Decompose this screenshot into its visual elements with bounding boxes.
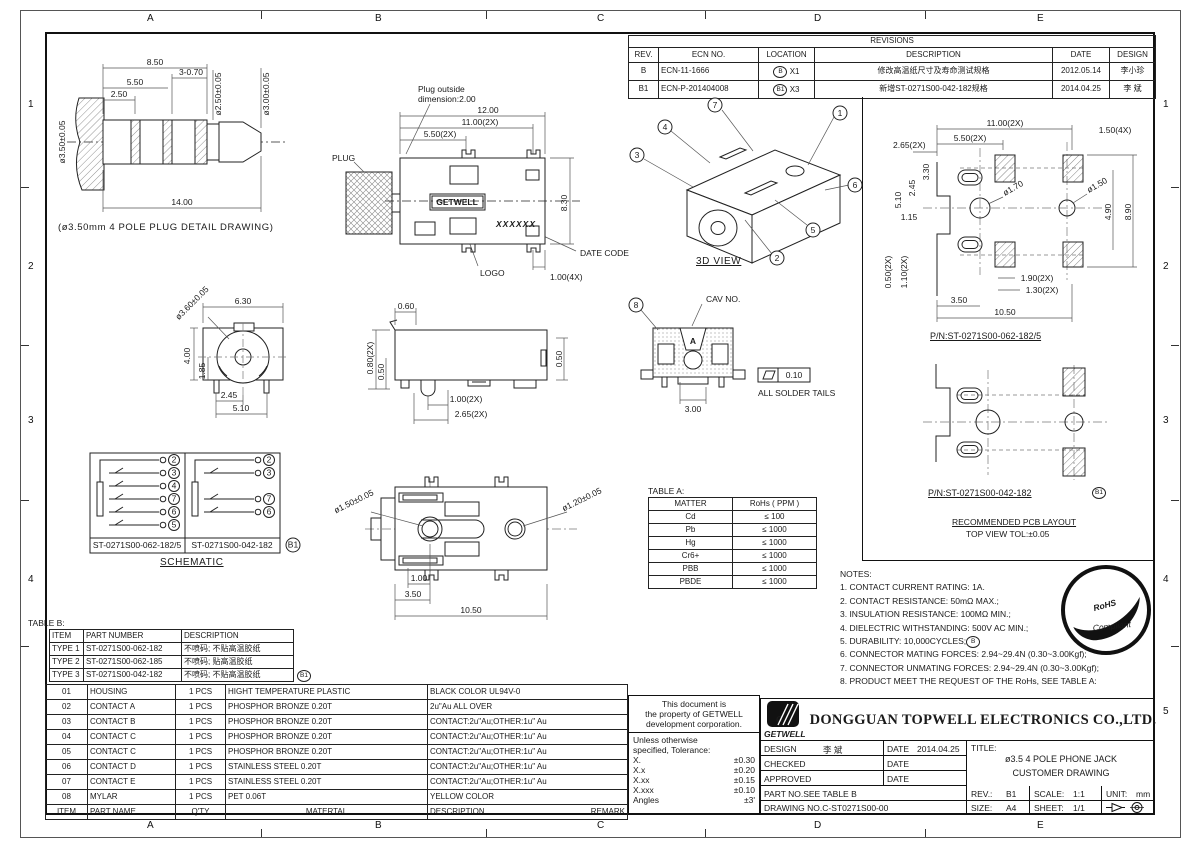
- pin-number: 2: [172, 455, 177, 465]
- dim-label: 12.00: [477, 105, 499, 115]
- zone-letter: E: [1037, 13, 1044, 24]
- solder-tails-note: ALL SOLDER TAILS: [758, 388, 836, 398]
- zone-letter: C: [597, 820, 604, 831]
- dim-label: 1.90(2X): [1021, 273, 1054, 283]
- dim-label: ø1.50±0.05: [332, 487, 375, 515]
- tolerance-row: X.x±0.20: [633, 765, 755, 775]
- pin-number: 3: [267, 468, 272, 478]
- projection-symbol-icon: [1103, 801, 1151, 814]
- zone-letter: E: [1037, 820, 1044, 831]
- drawing-title-line1: ø3.5 4 POLE PHONE JACK: [967, 754, 1155, 764]
- dim-label: ø3.60±0.05: [173, 284, 211, 322]
- dim-label: 3.50: [405, 589, 422, 599]
- zone-letter: B: [375, 13, 382, 24]
- zone-tick: [1171, 646, 1179, 647]
- side-view-drawing: 0.60 0.80(2X) 0.50 0.50 1.00(2X) 2.65(2X…: [328, 298, 594, 433]
- dim-label: 3.00: [685, 404, 702, 414]
- table-a-row: Pb≤ 1000: [649, 524, 817, 537]
- dim-label: 10.50: [994, 307, 1016, 317]
- pcb-layout-1-drawing: 11.00(2X) 5.50(2X) 1.50(4X) 2.65(2X) 3.3…: [865, 100, 1155, 328]
- zone-tick: [1171, 500, 1179, 501]
- dim-label: 1.85: [197, 362, 207, 379]
- pin-number: 6: [267, 507, 272, 517]
- part-row: 05CONTACT C1 PCSPHOSPHOR BRONZE 0.20TCON…: [46, 745, 628, 760]
- zone-tick: [1171, 345, 1179, 346]
- pcb-layout-tolerance: TOP VIEW TOL:±0.05: [966, 529, 1049, 539]
- pcb-layout-2-drawing: [895, 350, 1150, 485]
- cavity-letter: A: [690, 336, 696, 346]
- dim-label: 1.50(4X): [1099, 125, 1132, 135]
- unit-label: UNIT:: [1106, 789, 1127, 799]
- dim-label: 1.30(2X): [1026, 285, 1059, 295]
- type-row: TYPE 1ST-0271S00-062-182不喷码; 不贴高温胶纸: [50, 643, 294, 656]
- zone-letter: C: [597, 13, 604, 24]
- rev-value: B1: [1006, 789, 1016, 799]
- dim-label: 8.90: [1123, 203, 1133, 220]
- engineering-drawing-sheet: A B C D E A B C D E 1 2 3 4 1 2 3 4 5 RE…: [0, 0, 1200, 848]
- table-b-label: TABLE B:: [28, 618, 65, 628]
- location-col-header: LOCATION: [759, 48, 815, 63]
- dim-label: ø1.50: [1085, 175, 1109, 195]
- getwell-logo: G GETWELL: [764, 700, 814, 740]
- schematic-rev-balloon: B1: [288, 540, 299, 550]
- zone-tick: [261, 11, 262, 19]
- zone-tick: [21, 646, 29, 647]
- plug-detail-drawing: 8.50 3-0.70 5.50 2.50 14.00 ø3.50±0.05 ø…: [55, 50, 345, 222]
- dim-label: 1.00(2X): [450, 394, 483, 404]
- dim-label: 4.90: [1103, 203, 1113, 220]
- drawing-no: DRAWING NO.C-ST0271S00-00: [764, 803, 888, 813]
- dim-label: 3-0.70: [179, 67, 203, 77]
- balloon-6: 6: [853, 180, 858, 190]
- dim-label: 1.10(2X): [899, 256, 909, 289]
- dim-label: 1.15: [901, 212, 918, 222]
- dim-label: 0.60: [398, 301, 415, 311]
- flatness-value: 0.10: [786, 370, 803, 380]
- dim-label: 8.30: [559, 194, 569, 211]
- dim-label: ø3.50±0.05: [57, 120, 67, 163]
- dim-label: 2.45: [907, 179, 917, 196]
- item-header: ITEM: [50, 630, 84, 643]
- balloon-7: 7: [713, 100, 718, 110]
- pin-number: 5: [172, 520, 177, 530]
- balloon-4: 4: [663, 122, 668, 132]
- rev-label: REV.:: [971, 789, 992, 799]
- dim-label: 0.50: [554, 350, 564, 367]
- dim-label: 0.50: [376, 363, 386, 380]
- rohs-stamp-subtext: Compliant: [1092, 619, 1132, 633]
- rear-view-drawing: 8 CAV NO. A 3.00 0.10 ALL SOLDER TAILS: [610, 292, 850, 422]
- rohs-stamp-text: RoHS: [1092, 597, 1117, 613]
- scale-label: SCALE:: [1034, 789, 1064, 799]
- part-row: 08MYLAR1 PCSPET 0.06TYELLOW COLOR: [46, 790, 628, 805]
- part-row: 04CONTACT C1 PCSPHOSPHOR BRONZE 0.20TCON…: [46, 730, 628, 745]
- note-rev-balloon: B: [966, 636, 980, 648]
- rev-col-header: REV.: [629, 48, 659, 63]
- description-col-header: DESCRIPTION: [815, 48, 1053, 63]
- zone-letter: D: [814, 820, 821, 831]
- pcb-zone-divider: [862, 560, 1154, 561]
- approved-label: APPROVED: [764, 774, 811, 784]
- schematic-caption: SCHEMATIC: [160, 557, 224, 568]
- logo-label: LOGO: [480, 268, 505, 278]
- property-note: the property of GETWELL: [631, 709, 757, 719]
- design-value: 李 斌: [823, 744, 842, 756]
- type-row: TYPE 2ST-0271S00-062-185不喷码; 贴高温胶纸: [50, 656, 294, 669]
- dim-label: 6.30: [235, 296, 252, 306]
- zone-tick: [261, 829, 262, 837]
- zone-tick: [705, 11, 706, 19]
- location-balloon: B: [773, 66, 787, 78]
- front-view-drawing: 6.30 ø3.60±0.05 4.00 1.85 2.45 5.10: [98, 283, 333, 433]
- date-label: DATE: [887, 759, 909, 769]
- zone-letter: B: [375, 820, 382, 831]
- tolerance-row: X.xxx±0.10: [633, 785, 755, 795]
- title-label: TITLE:: [971, 743, 997, 753]
- drawing-title-line2: CUSTOMER DRAWING: [967, 768, 1155, 778]
- date-value: 2014.04.25: [917, 744, 960, 754]
- dim-label: 0.50(2X): [883, 256, 893, 289]
- brand-marking: GETWELL: [436, 197, 478, 207]
- view-3d-drawing: 7 1 4 3 6 5 2: [625, 95, 867, 260]
- dim-label: ø1.20±0.05: [560, 485, 603, 513]
- view-3d-caption: 3D VIEW: [696, 256, 741, 267]
- part-row: 03CONTACT B1 PCSPHOSPHOR BRONZE 0.20TCON…: [46, 715, 628, 730]
- part-no: PART NO.SEE TABLE B: [764, 789, 857, 799]
- zone-tick: [21, 187, 29, 188]
- size-value: A4: [1006, 803, 1016, 813]
- scale-value: 1:1: [1073, 789, 1085, 799]
- zone-tick: [925, 829, 926, 837]
- tolerance-row: Angles±3': [633, 795, 755, 805]
- dim-label: 3.30: [921, 163, 931, 180]
- schematic-left-pn: ST-0271S00-062-182/5: [93, 540, 182, 550]
- cav-no-label: CAV NO.: [706, 294, 740, 304]
- pin-number: 3: [172, 468, 177, 478]
- property-note: This document is: [631, 699, 757, 709]
- plug-label: PLUG: [332, 153, 355, 163]
- part-number-header: PART NUMBER: [84, 630, 182, 643]
- plug-detail-caption: (ø3.50mm 4 POLE PLUG DETAIL DRAWING): [58, 222, 274, 233]
- rohs-compliant-stamp-icon: RoHS Compliant: [1058, 562, 1154, 658]
- zone-number: 3: [1163, 415, 1169, 426]
- part-row: 02CONTACT A1 PCSPHOSPHOR BRONZE 0.20T2u"…: [46, 700, 628, 715]
- property-note: development corporation.: [631, 719, 757, 729]
- zone-tick: [486, 829, 487, 837]
- checked-label: CHECKED: [764, 759, 806, 769]
- revisions-table: REVISIONS REV. ECN NO. LOCATION DESCRIPT…: [628, 35, 1156, 99]
- dim-label: 4.00: [182, 347, 192, 364]
- parts-list-table: 01HOUSING1 PCSHIGHT TEMPERATURE PLASTICB…: [45, 684, 628, 820]
- zone-number: 4: [28, 574, 34, 585]
- pcb1-part-number: P/N:ST-0271S00-062-182/5: [930, 331, 1041, 341]
- date-code-label: DATE CODE: [580, 248, 629, 258]
- dim-label: 5.10: [893, 191, 903, 208]
- table-b-types: ITEM PART NUMBER DESCRIPTION TYPE 1ST-02…: [49, 629, 294, 682]
- size-label: SIZE:: [971, 803, 992, 813]
- zone-letter: A: [147, 13, 154, 24]
- date-col-header: DATE: [1053, 48, 1110, 63]
- dim-label: 5.50(2X): [954, 133, 987, 143]
- balloon-1: 1: [838, 108, 843, 118]
- date-label: DATE: [887, 744, 909, 754]
- balloon-2: 2: [775, 253, 780, 263]
- pcb-layout-caption: RECOMMENDED PCB LAYOUT: [952, 517, 1076, 527]
- zone-number: 1: [1163, 99, 1169, 110]
- type3-rev-balloon: B1: [297, 670, 311, 682]
- revision-row: B ECN-11-1666 B X1 修改高温纸尺寸及寿命测试规格 2012.0…: [629, 63, 1156, 81]
- table-a-row: Hg≤ 1000: [649, 537, 817, 550]
- top-view-drawing: Plug outside dimension:2.00: [330, 82, 632, 284]
- design-col-header: DESIGN: [1110, 48, 1156, 63]
- zone-tick: [21, 345, 29, 346]
- dim-label: 11.00(2X): [987, 118, 1024, 128]
- part-row: 06CONTACT D1 PCSSTAINLESS STEEL 0.20TCON…: [46, 760, 628, 775]
- schematic-right-pn: ST-0271S00-042-182: [191, 540, 273, 550]
- location-balloon: B1: [773, 84, 787, 96]
- dim-label: 3.50: [951, 295, 968, 305]
- dim-label: 1.00(4X): [550, 272, 583, 282]
- pcb-zone-divider: [862, 97, 863, 560]
- plug-outside-note: Plug outside: [418, 84, 465, 94]
- rohs-header: RoHs ( PPM ): [733, 498, 817, 511]
- zone-tick: [705, 829, 706, 837]
- zone-tick: [486, 11, 487, 19]
- design-label: DESIGN: [764, 744, 797, 754]
- zone-number: 2: [1163, 261, 1169, 272]
- dim-label: ø2.50±0.05: [213, 72, 223, 115]
- balloon-8: 8: [634, 300, 639, 310]
- dim-label: 8.50: [147, 57, 164, 67]
- description-header: DESCRIPTION: [182, 630, 294, 643]
- zone-number: 5: [1163, 706, 1169, 717]
- title-block: G GETWELL DONGGUAN TOPWELL ELECTRONICS C…: [760, 698, 1155, 815]
- sheet-value: 1/1: [1073, 803, 1085, 813]
- parts-footer-row: ITEM PART NAME Q'TY MATERTAL DESCRIPTION…: [46, 805, 628, 820]
- company-name: DONGGUAN TOPWELL ELECTRONICS CO.,LTD.: [810, 712, 1157, 729]
- pin-number: 2: [267, 455, 272, 465]
- date-code-marking: XXXXXX: [495, 219, 536, 229]
- table-a-row: PBB≤ 1000: [649, 563, 817, 576]
- dim-label: 2.65(2X): [455, 409, 488, 419]
- plug-outside-note: dimension:2.00: [418, 94, 476, 104]
- part-row: 07CONTACT E1 PCSSTAINLESS STEEL 0.20TCON…: [46, 775, 628, 790]
- table-a-row: Cd≤ 100: [649, 511, 817, 524]
- zone-number: 1: [28, 99, 34, 110]
- note-item: 8. PRODUCT MEET THE REQUEST OF THE RoHs,…: [840, 675, 1170, 688]
- tolerance-row: X.±0.30: [633, 755, 755, 765]
- unit-value: mm: [1136, 789, 1150, 799]
- dim-label: 5.10: [233, 403, 250, 413]
- part-row: 01HOUSING1 PCSHIGHT TEMPERATURE PLASTICB…: [46, 685, 628, 700]
- pcb2-part-number: P/N:ST-0271S00-042-182: [928, 488, 1032, 498]
- table-a-row: Cr6+≤ 1000: [649, 550, 817, 563]
- bottom-view-drawing: ø1.50±0.05 ø1.20±0.05 1.00 3.50 10.50: [325, 450, 617, 628]
- pin-number: 4: [172, 481, 177, 491]
- zone-letter: D: [814, 13, 821, 24]
- pin-number: 7: [267, 494, 272, 504]
- tolerance-row: X.xx±0.15: [633, 775, 755, 785]
- schematic-drawing: 2 3 4 7 6 5 2 3 7 6 ST-0271S00-062-182/5…: [73, 438, 308, 563]
- dim-label: 11.00(2X): [462, 117, 499, 127]
- table-a: MATTER RoHs ( PPM ) Cd≤ 100 Pb≤ 1000 Hg≤…: [648, 497, 817, 589]
- tolerance-note: Unless otherwise: [633, 735, 755, 745]
- dim-label: 1.00: [411, 573, 428, 583]
- matter-header: MATTER: [649, 498, 733, 511]
- zone-number: 3: [28, 415, 34, 426]
- dim-label: 10.50: [460, 605, 482, 615]
- table-a-label: TABLE A:: [648, 486, 684, 496]
- zone-letter: A: [147, 820, 154, 831]
- zone-tick: [1171, 187, 1179, 188]
- tolerance-box: This document is the property of GETWELL…: [628, 695, 760, 815]
- tolerance-note: specified, Tolerance:: [633, 745, 755, 755]
- dim-label: 14.00: [171, 197, 193, 207]
- balloon-5: 5: [811, 225, 816, 235]
- type-row: TYPE 3ST-0271S00-042-182不喷码; 不贴高温胶纸: [50, 669, 294, 682]
- zone-number: 2: [28, 261, 34, 272]
- zone-tick: [925, 11, 926, 19]
- ecn-col-header: ECN NO.: [659, 48, 759, 63]
- date-label: DATE: [887, 774, 909, 784]
- pcb2-rev-balloon: B1: [1092, 487, 1106, 499]
- revisions-title: REVISIONS: [629, 36, 1156, 48]
- dim-label: 5.50: [127, 77, 144, 87]
- logo-wordmark: GETWELL: [764, 729, 806, 739]
- table-a-row: PBDE≤ 1000: [649, 576, 817, 589]
- note-item: 7. CONNECTOR UNMATING FORCES: 2.94~29.4N…: [840, 662, 1170, 675]
- dim-label: 5.50(2X): [424, 129, 457, 139]
- balloon-3: 3: [635, 150, 640, 160]
- pin-number: 6: [172, 507, 177, 517]
- sheet-label: SHEET:: [1034, 803, 1064, 813]
- dim-label: 2.65(2X): [893, 140, 926, 150]
- dim-label: 0.80(2X): [365, 342, 375, 375]
- dim-label: ø3.00±0.05: [261, 72, 271, 115]
- dim-label: 2.50: [111, 89, 128, 99]
- dim-label: 2.45: [221, 390, 238, 400]
- zone-tick: [21, 500, 29, 501]
- pin-number: 7: [172, 494, 177, 504]
